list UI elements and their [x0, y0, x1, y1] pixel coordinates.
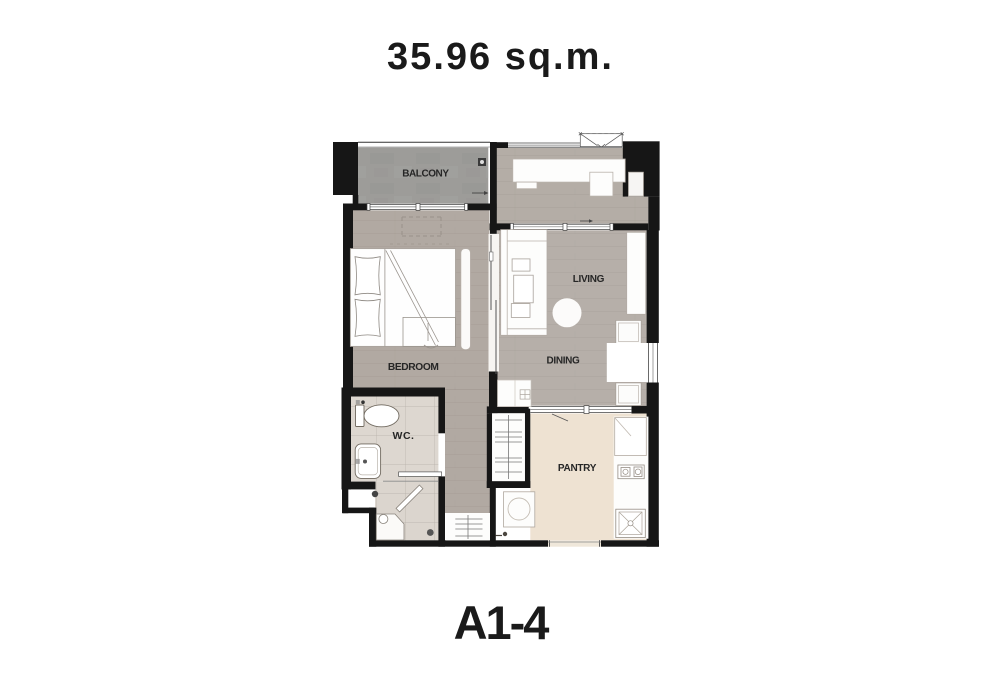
svg-text:LIVING: LIVING: [573, 274, 605, 285]
svg-text:BEDROOM: BEDROOM: [388, 362, 439, 373]
svg-text:PANTRY: PANTRY: [558, 463, 597, 474]
svg-text:BALCONY: BALCONY: [402, 168, 449, 179]
svg-text:WC.: WC.: [393, 430, 415, 442]
svg-text:DINING: DINING: [547, 356, 580, 367]
